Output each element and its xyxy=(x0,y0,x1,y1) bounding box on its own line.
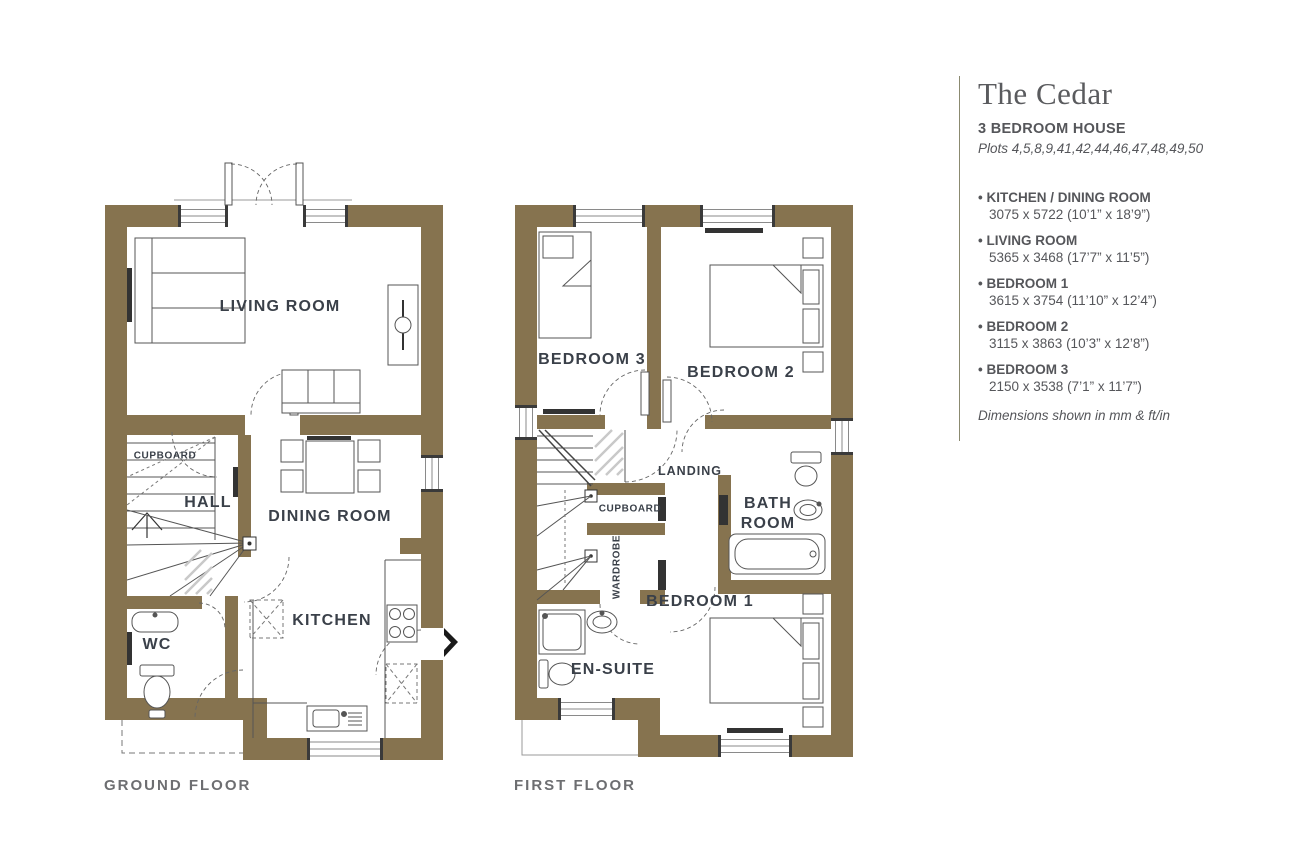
bedside-table xyxy=(803,594,823,614)
label-ensuite: EN-SUITE xyxy=(571,661,655,679)
dining-table xyxy=(306,441,354,493)
label-bathroom: BATH ROOM xyxy=(728,494,808,534)
spec-room-name: LIVING ROOM xyxy=(978,233,1228,248)
gf-dining-furniture xyxy=(281,440,380,493)
room-specs: KITCHEN / DINING ROOM 3075 x 5722 (10’1”… xyxy=(978,190,1228,394)
spec-item: BEDROOM 3 2150 x 3538 (7’1” x 11’7”) xyxy=(978,362,1228,394)
spec-room-dims: 3075 x 5722 (10’1” x 18’9”) xyxy=(978,207,1228,222)
first-floor-plan xyxy=(505,190,865,790)
pillow xyxy=(803,663,819,699)
gf-living-furniture xyxy=(135,238,418,413)
label-wardrobe: WARDROBE xyxy=(612,535,623,599)
label-ff-cupboard: CUPBOARD xyxy=(599,504,662,515)
label-living-room: LIVING ROOM xyxy=(220,298,341,316)
pillow xyxy=(803,623,819,659)
ff-landing-hatch xyxy=(595,430,623,475)
wc-cistern xyxy=(140,665,174,676)
spec-room-name: KITCHEN / DINING ROOM xyxy=(978,190,1228,205)
spec-room-dims: 2150 x 3538 (7’1” x 11’7”) xyxy=(978,379,1228,394)
label-bedroom2: BEDROOM 2 xyxy=(687,364,795,382)
chair xyxy=(358,470,380,492)
spec-item: BEDROOM 1 3615 x 3754 (11’10” x 12’4”) xyxy=(978,276,1228,308)
spec-item: BEDROOM 2 3115 x 3863 (10’3” x 12’8”) xyxy=(978,319,1228,351)
bedside-table xyxy=(803,238,823,258)
spec-item: LIVING ROOM 5365 x 3468 (17’7” x 11’5”) xyxy=(978,233,1228,265)
label-kitchen: KITCHEN xyxy=(292,612,372,630)
ff-bed2 xyxy=(710,238,823,372)
entrance-arrow-icon xyxy=(444,628,458,657)
label-hall: HALL xyxy=(184,494,231,512)
sofa-2 xyxy=(282,370,360,413)
pillow xyxy=(543,236,573,258)
ff-canopy-outline xyxy=(522,720,638,755)
house-title: The Cedar xyxy=(978,76,1228,112)
chair xyxy=(358,440,380,462)
panel-divider xyxy=(959,76,960,441)
gf-porch-outline xyxy=(122,720,243,753)
info-panel: The Cedar 3 BEDROOM HOUSE Plots 4,5,8,9,… xyxy=(978,76,1228,423)
ff-stairs xyxy=(537,430,597,600)
ff-bed1 xyxy=(710,594,823,727)
ground-floor-caption: GROUND FLOOR xyxy=(104,777,251,794)
toilet-cistern xyxy=(539,660,548,688)
house-subtitle: 3 BEDROOM HOUSE xyxy=(978,121,1228,137)
toilet-cistern xyxy=(791,452,821,463)
spec-room-dims: 5365 x 3468 (17’7” x 11’5”) xyxy=(978,250,1228,265)
spec-room-name: BEDROOM 1 xyxy=(978,276,1228,291)
pillow xyxy=(803,309,819,343)
floorplan-page: LIVING ROOM CUPBOARD HALL DINING ROOM WC… xyxy=(0,0,1295,861)
ff-bed3 xyxy=(539,232,591,338)
label-bedroom1: BEDROOM 1 xyxy=(646,593,754,611)
ground-floor-plan xyxy=(100,160,460,780)
label-dining-room: DINING ROOM xyxy=(268,508,391,526)
gf-kitchen-units xyxy=(250,560,421,738)
spec-room-dims: 3115 x 3863 (10’3” x 12’8”) xyxy=(978,336,1228,351)
plots-list: Plots 4,5,8,9,41,42,44,46,47,48,49,50 xyxy=(978,141,1228,156)
chair xyxy=(281,440,303,462)
spec-room-name: BEDROOM 2 xyxy=(978,319,1228,334)
label-wc: WC xyxy=(142,636,171,654)
wc-toilet xyxy=(144,676,170,708)
spec-room-dims: 3615 x 3754 (11’10” x 12’4”) xyxy=(978,293,1228,308)
label-landing: LANDING xyxy=(658,464,722,478)
gf-hall-hatch xyxy=(185,550,212,594)
gf-french-doors xyxy=(225,163,303,205)
spec-room-name: BEDROOM 3 xyxy=(978,362,1228,377)
pillow xyxy=(803,270,819,304)
label-bedroom3: BEDROOM 3 xyxy=(538,351,646,369)
toilet xyxy=(795,466,817,486)
bedside-table xyxy=(803,352,823,372)
label-gf-cupboard: CUPBOARD xyxy=(134,451,197,462)
dimensions-footnote: Dimensions shown in mm & ft/in xyxy=(978,408,1228,423)
spec-item: KITCHEN / DINING ROOM 3075 x 5722 (10’1”… xyxy=(978,190,1228,222)
first-floor-caption: FIRST FLOOR xyxy=(514,777,636,794)
chair xyxy=(281,470,303,492)
bedside-table xyxy=(803,707,823,727)
